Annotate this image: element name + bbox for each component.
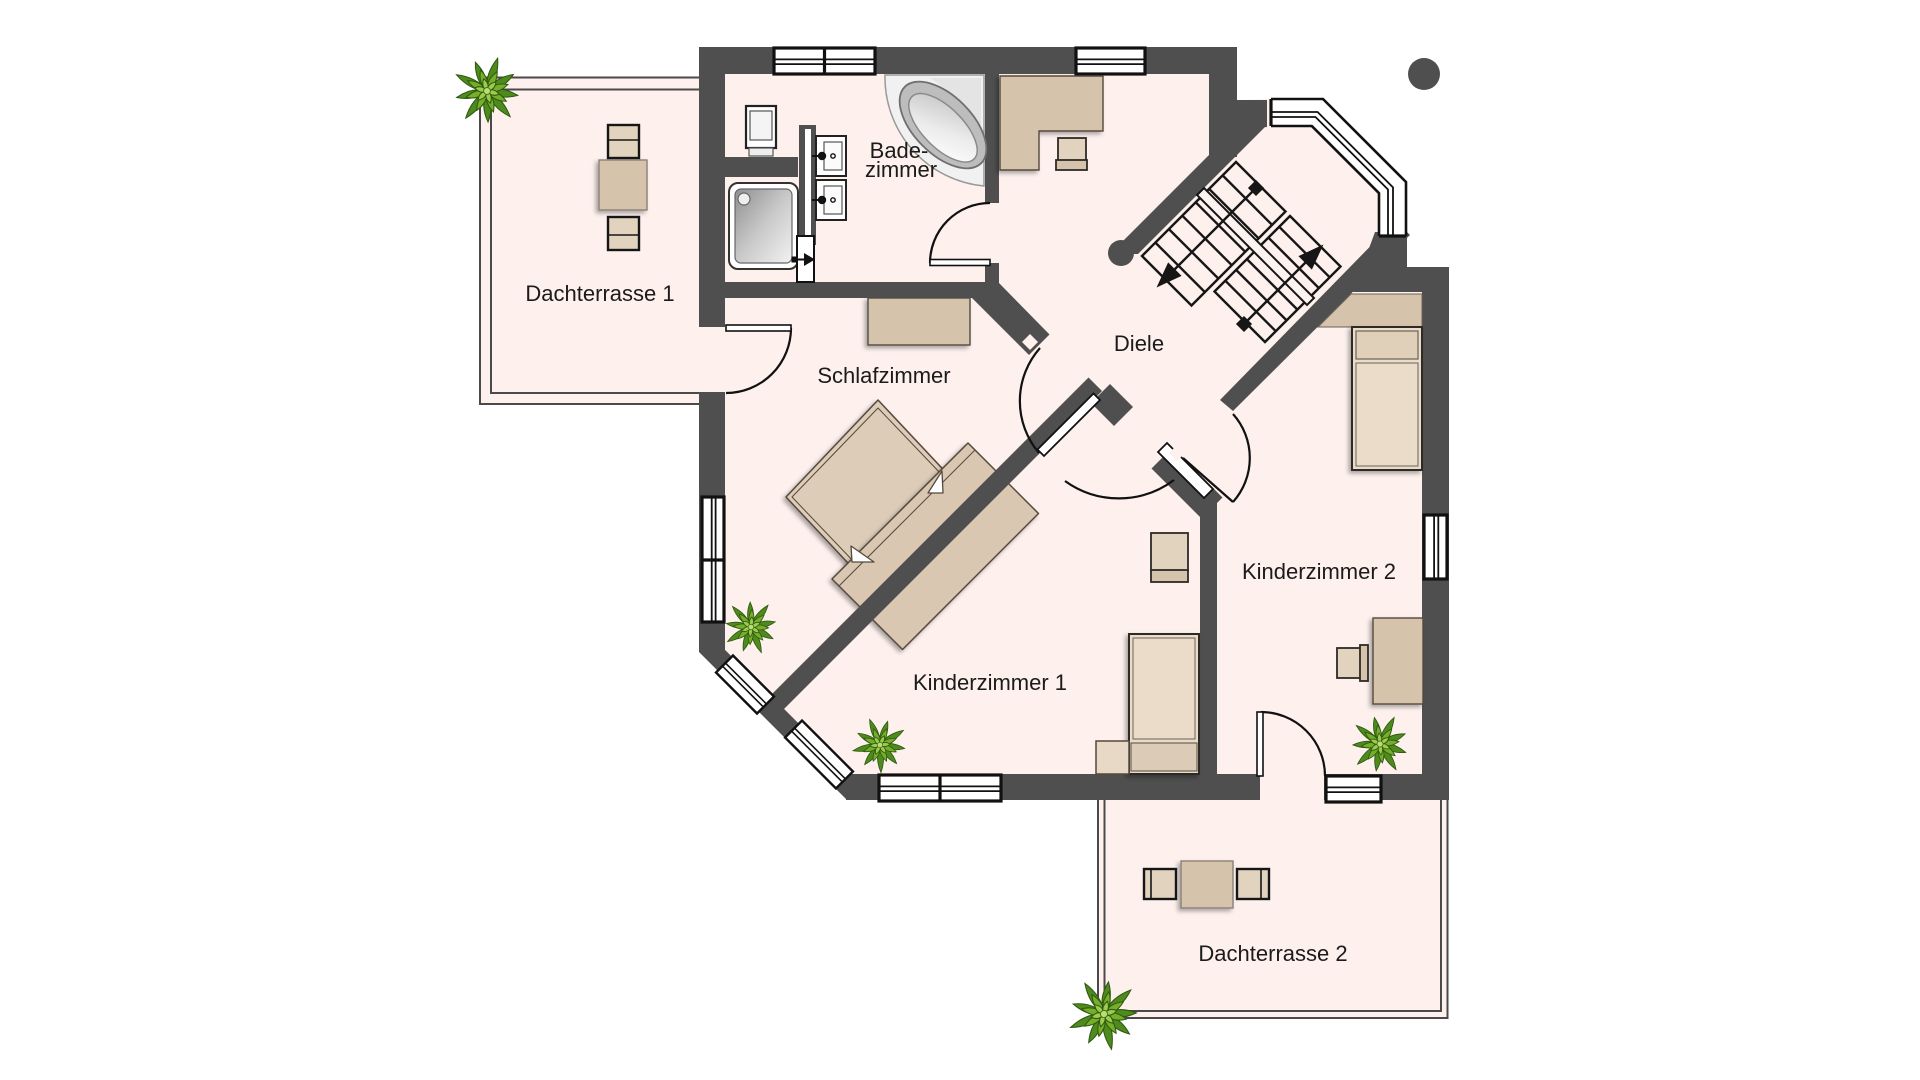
svg-text:zimmer: zimmer xyxy=(865,157,937,182)
svg-text:Dachterrasse 2: Dachterrasse 2 xyxy=(1198,941,1347,966)
svg-text:Kinderzimmer 1: Kinderzimmer 1 xyxy=(913,670,1067,695)
svg-text:Schlafzimmer: Schlafzimmer xyxy=(817,363,950,388)
svg-text:Dachterrasse 1: Dachterrasse 1 xyxy=(525,281,674,306)
svg-text:Kinderzimmer 2: Kinderzimmer 2 xyxy=(1242,559,1396,584)
svg-text:Diele: Diele xyxy=(1114,331,1164,356)
